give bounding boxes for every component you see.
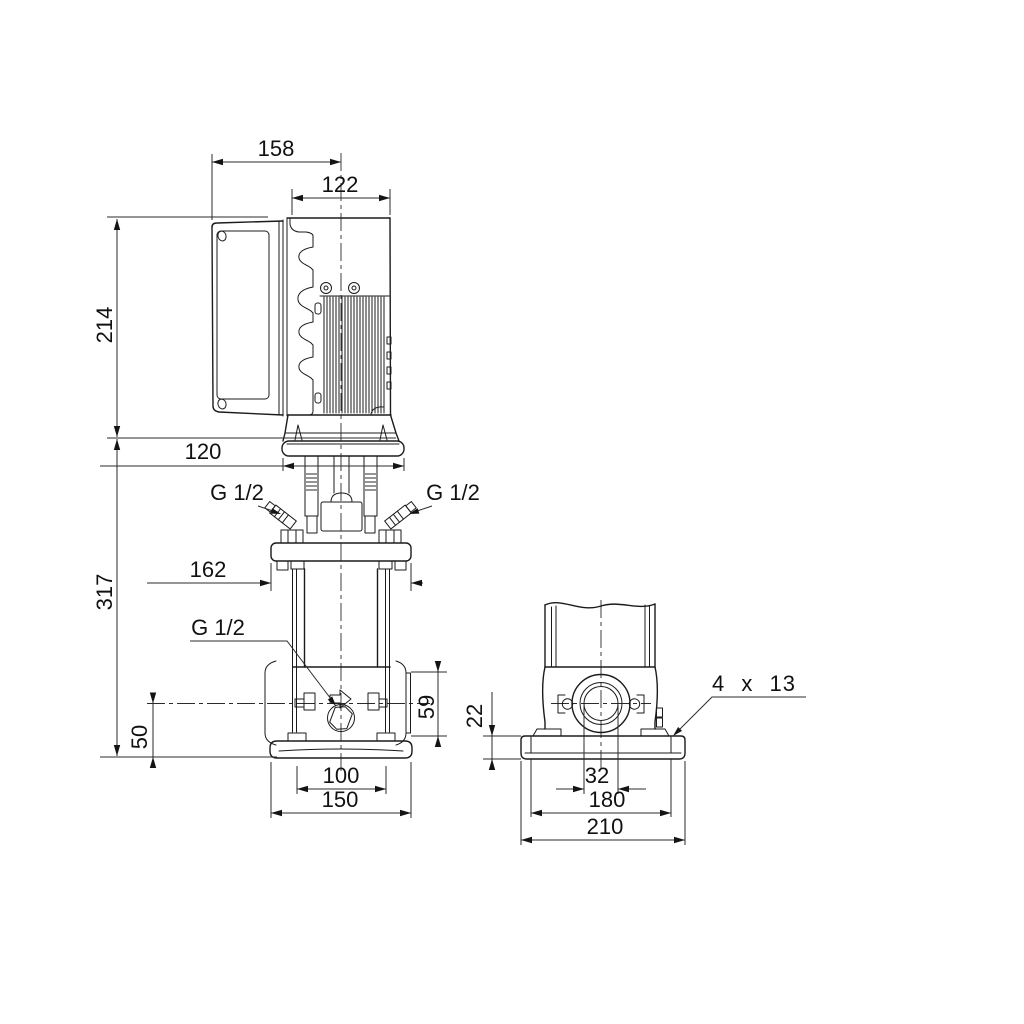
dimensions: 158 122 214 120 G 1/2 G 1/2 162 G 1/2 31… xyxy=(92,136,806,845)
motor-fins xyxy=(324,297,384,413)
dim-text-g12-right: G 1/2 xyxy=(426,480,480,505)
gauge-plug-right xyxy=(385,501,417,529)
screw-icon xyxy=(349,283,360,294)
clip-latch xyxy=(315,393,321,403)
break-line xyxy=(545,603,655,608)
motor-clip xyxy=(299,247,313,270)
coupling-block xyxy=(321,502,362,531)
side-plug xyxy=(562,699,572,709)
motor-flange xyxy=(282,415,404,456)
staybolt-nut xyxy=(379,530,401,543)
dim-text-180: 180 xyxy=(589,787,626,812)
dim-text-g12-left: G 1/2 xyxy=(210,480,264,505)
screw-icon xyxy=(321,283,332,294)
dim-text-100: 100 xyxy=(323,763,360,788)
motor-clip xyxy=(299,322,313,345)
motor-body xyxy=(287,218,391,415)
gauge-plug-left xyxy=(264,501,296,529)
dim-text-4x13: 4 x 13 xyxy=(712,671,796,696)
dim-text-214: 214 xyxy=(92,307,117,344)
dim-text-59: 59 xyxy=(414,695,439,719)
dim-text-50: 50 xyxy=(127,725,152,749)
dimension-texts: 158 122 214 120 G 1/2 G 1/2 162 G 1/2 31… xyxy=(92,136,796,839)
chamber-plug xyxy=(368,693,379,710)
port-stub-right xyxy=(396,661,411,745)
motor-clip xyxy=(299,357,313,380)
port-stub-left xyxy=(265,661,276,745)
chamber-plug xyxy=(304,693,315,710)
shaft-dome xyxy=(331,493,352,502)
motor-clip xyxy=(298,287,313,313)
dim-text-150: 150 xyxy=(322,787,359,812)
dim-text-210: 210 xyxy=(587,814,624,839)
pump-sleeve xyxy=(265,569,411,745)
motor-control-box xyxy=(212,219,287,416)
side-view xyxy=(521,600,685,770)
dim-text-162: 162 xyxy=(190,557,227,582)
pump-dimensional-drawing: 158 122 214 120 G 1/2 G 1/2 162 G 1/2 31… xyxy=(0,0,1024,1024)
dim-text-158: 158 xyxy=(258,136,295,161)
clip-latch xyxy=(315,303,321,314)
dim-text-g12-drain: G 1/2 xyxy=(191,615,245,640)
base-pad xyxy=(377,733,395,741)
dim-text-120: 120 xyxy=(185,439,222,464)
side-base xyxy=(521,736,685,759)
dim-text-32: 32 xyxy=(585,763,609,788)
dim-text-22: 22 xyxy=(462,704,487,728)
staybolt-nut xyxy=(281,530,303,543)
dim-text-122: 122 xyxy=(322,172,359,197)
base-pad xyxy=(288,733,306,741)
dim-text-317: 317 xyxy=(92,574,117,611)
side-plug xyxy=(629,699,639,709)
adapter-flange xyxy=(282,441,404,456)
technical-drawing-page: 158 122 214 120 G 1/2 G 1/2 162 G 1/2 31… xyxy=(0,0,1024,1024)
coupling-section xyxy=(264,456,417,543)
